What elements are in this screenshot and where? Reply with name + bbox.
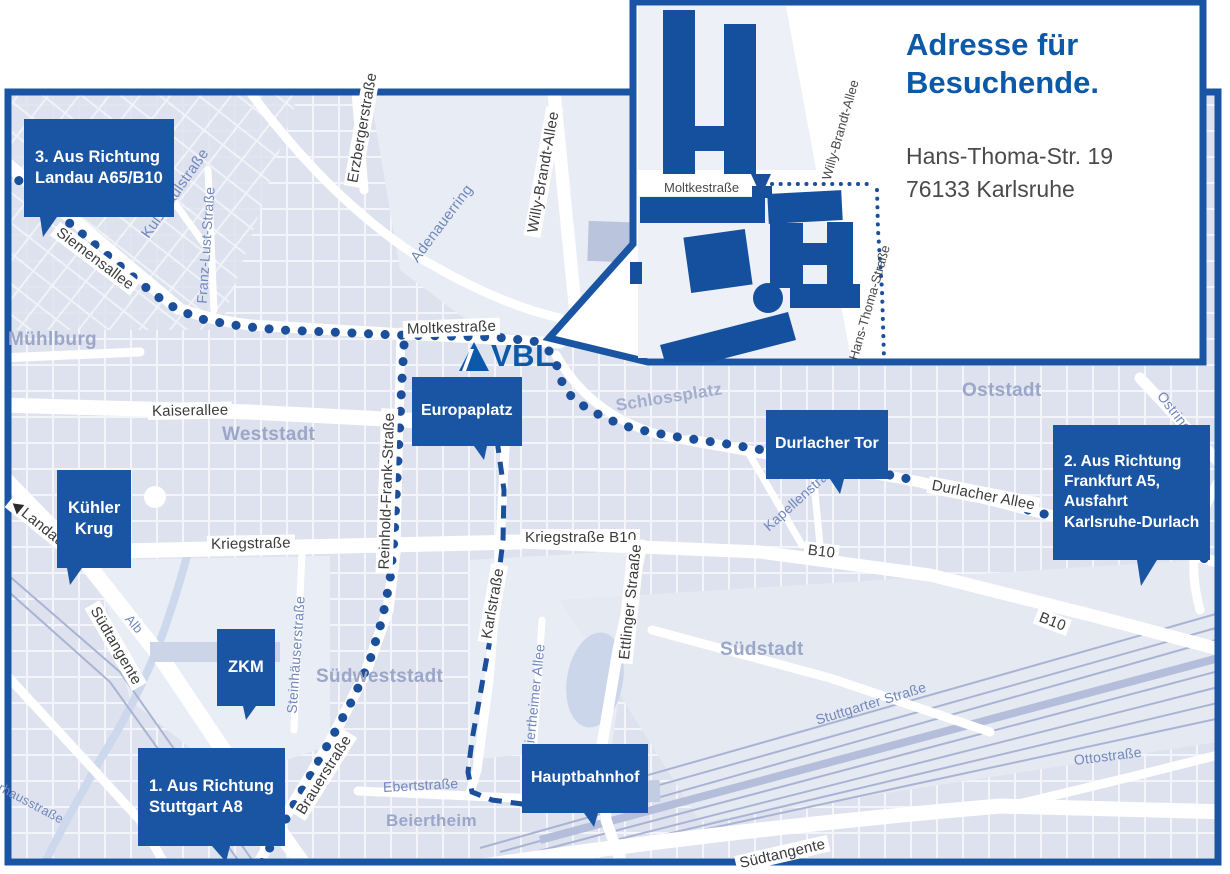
- callout-stuttgart: 1. Aus Richtung Stuttgart A8: [138, 748, 285, 846]
- place-oststadt: Oststadt: [962, 380, 1041, 402]
- callout-pointer: [474, 446, 487, 460]
- callout-pointer: [584, 813, 598, 827]
- place-suedstadt: Südstadt: [720, 639, 804, 661]
- street-kriegstrasse: Kriegstraße: [207, 534, 295, 553]
- callout-pointer: [830, 479, 844, 494]
- callout-europaplatz: Europaplatz: [412, 377, 522, 446]
- callout-frankfurt: 2. Aus Richtung Frankfurt A5, Ausfahrt K…: [1053, 425, 1210, 560]
- street-moltkestrasse: Moltkestraße: [403, 318, 501, 338]
- street-kaiserallee: Kaiserallee: [148, 402, 233, 420]
- place-weststadt: Weststadt: [222, 424, 315, 446]
- vbl-logo-text: VBL: [491, 342, 555, 371]
- callout-durlacher-tor: Durlacher Tor: [766, 410, 888, 479]
- callout-hauptbahnhof: Hauptbahnhof: [522, 744, 648, 813]
- callout-zkm: ZKM: [217, 629, 275, 706]
- place-suedweststadt: Südweststadt: [316, 666, 443, 688]
- callout-pointer: [40, 217, 57, 237]
- inset-address: Hans-Thoma-Str. 19 76133 Karlsruhe: [906, 140, 1113, 207]
- callout-kuehler-krug: Kühler Krug: [57, 470, 131, 568]
- callout-pointer: [243, 706, 256, 720]
- vbl-logo-triangle-icon: [459, 342, 489, 371]
- inset-title: Adresse für Besuchende.: [906, 26, 1099, 103]
- street-kriegstrasse-b10: Kriegstraße B10: [521, 529, 640, 546]
- callout-pointer: [67, 568, 82, 585]
- karlsruhe-directions-map: Siemensallee Kußmaulstraße Franz-Lust-St…: [0, 0, 1230, 874]
- callout-pointer: [1137, 560, 1157, 586]
- vbl-logo: VBL: [459, 342, 555, 371]
- place-beiertheim: Beiertheim: [386, 811, 477, 831]
- callout-pointer: [212, 846, 230, 862]
- place-muehlburg: Mühlburg: [8, 329, 97, 351]
- map-canvas: [0, 0, 1230, 874]
- callout-landau: 3. Aus Richtung Landau A65/B10: [24, 119, 174, 217]
- inset-street-moltkestrasse: Moltkestraße: [664, 180, 739, 195]
